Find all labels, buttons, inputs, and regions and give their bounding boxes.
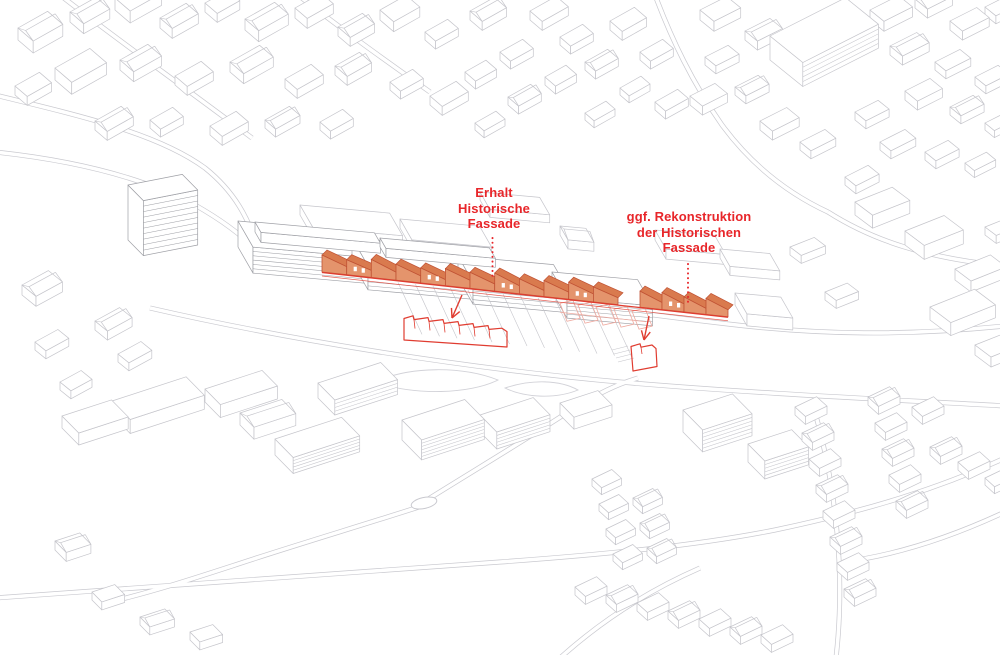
line <box>414 320 415 329</box>
line <box>444 323 445 332</box>
line <box>451 308 452 318</box>
landscape-contour <box>505 382 578 396</box>
building <box>320 109 353 139</box>
building <box>930 437 962 465</box>
building <box>975 65 1000 94</box>
building <box>882 439 914 467</box>
building <box>160 3 198 38</box>
building <box>545 65 577 94</box>
building <box>950 95 984 124</box>
building <box>700 0 741 31</box>
building <box>760 108 799 141</box>
building <box>60 371 92 399</box>
line <box>641 347 642 354</box>
building <box>975 332 1000 367</box>
building <box>795 397 827 425</box>
building <box>905 78 942 110</box>
building <box>95 106 133 140</box>
building <box>338 13 375 46</box>
building <box>889 465 921 493</box>
diagram-canvas: Erhalt Historische Fassade ggf. Rekonstr… <box>0 0 1000 655</box>
building <box>430 81 468 115</box>
building <box>128 174 198 255</box>
facade-window <box>584 293 587 298</box>
building <box>640 514 669 539</box>
building <box>668 601 700 629</box>
building <box>905 216 963 260</box>
building <box>950 8 989 41</box>
facade-window <box>510 285 513 290</box>
facade-window <box>677 303 680 308</box>
building <box>647 539 676 564</box>
building <box>896 491 928 519</box>
building <box>62 400 128 445</box>
building <box>890 33 929 66</box>
building <box>633 489 662 514</box>
annotation-line: der Historischen <box>604 225 774 241</box>
building <box>585 49 618 79</box>
building <box>730 617 762 645</box>
annotation-line: Erhalt <box>409 185 579 201</box>
roundabout <box>410 495 438 511</box>
building <box>761 625 793 653</box>
facade-window <box>362 268 365 273</box>
building <box>735 75 769 104</box>
annotation-erhalt-fassade: Erhalt Historische Fassade <box>409 185 579 232</box>
facade-window <box>354 267 357 272</box>
annotation-line: Fassade <box>604 240 774 256</box>
building <box>402 400 484 460</box>
building <box>210 111 248 145</box>
building <box>855 100 889 129</box>
building <box>592 470 621 495</box>
building <box>285 64 323 98</box>
line <box>641 330 644 340</box>
building <box>915 0 952 18</box>
building <box>825 283 859 308</box>
building <box>95 308 132 341</box>
building <box>816 475 848 503</box>
building <box>230 45 273 83</box>
arrow-down-icon <box>451 295 462 318</box>
building <box>575 577 607 605</box>
building <box>823 501 855 529</box>
building <box>610 7 647 40</box>
city-fabric <box>15 0 1000 652</box>
building <box>175 61 213 95</box>
building <box>380 0 420 32</box>
building <box>868 387 900 415</box>
building <box>655 89 688 119</box>
building <box>699 609 731 637</box>
building <box>480 398 550 449</box>
building <box>115 0 162 23</box>
building <box>500 39 533 69</box>
building <box>140 609 175 635</box>
facade-window <box>436 276 439 281</box>
building <box>530 0 568 30</box>
annotation-line: Fassade <box>409 216 579 232</box>
building <box>560 391 612 430</box>
building <box>55 533 91 562</box>
building <box>606 520 635 545</box>
building <box>585 101 615 128</box>
annotation-line: ggf. Rekonstruktion <box>604 209 774 225</box>
building <box>855 187 910 228</box>
axonometric-site-plan <box>0 0 1000 655</box>
building <box>475 111 505 138</box>
building <box>985 469 1000 494</box>
building <box>790 237 825 263</box>
building <box>118 342 152 371</box>
building <box>390 69 423 99</box>
projected-facade-outline-left <box>404 316 507 347</box>
building <box>935 49 971 78</box>
facade-window <box>576 291 579 296</box>
building <box>844 579 876 607</box>
building <box>809 449 841 477</box>
building <box>845 165 879 194</box>
building <box>265 106 300 137</box>
annotation-rekonstruktion-fassade: ggf. Rekonstruktion der Historischen Fas… <box>604 209 774 256</box>
building <box>245 2 288 41</box>
building <box>985 112 1000 137</box>
building <box>640 39 673 69</box>
building <box>875 413 907 441</box>
building <box>18 11 63 53</box>
line <box>429 321 430 330</box>
building <box>620 76 650 103</box>
building <box>560 24 593 54</box>
building <box>318 363 398 416</box>
building <box>205 0 240 22</box>
building <box>55 48 107 94</box>
line <box>614 350 630 354</box>
building <box>606 585 638 613</box>
building <box>335 52 372 85</box>
building <box>22 271 62 307</box>
facade-window <box>502 283 505 288</box>
projected-facade-outline-right <box>631 344 657 371</box>
line <box>616 354 632 358</box>
annotation-line: Historische <box>409 201 579 217</box>
building <box>880 129 916 158</box>
building <box>508 84 541 114</box>
road-surface <box>843 512 1000 562</box>
facade-window <box>669 302 672 307</box>
building <box>295 0 333 28</box>
building <box>748 430 809 479</box>
road-surface <box>118 506 422 600</box>
building <box>120 44 162 81</box>
line <box>612 346 628 350</box>
line <box>474 327 475 336</box>
building <box>599 495 628 520</box>
building <box>800 129 836 158</box>
building <box>35 330 69 359</box>
building <box>470 0 507 30</box>
building <box>770 0 878 87</box>
building <box>150 107 183 137</box>
road-casing <box>843 512 1000 562</box>
building <box>705 45 739 74</box>
facade-window <box>428 275 431 280</box>
building <box>190 625 223 650</box>
building <box>985 218 1000 243</box>
line <box>459 325 460 334</box>
building <box>425 19 458 49</box>
line <box>489 329 490 338</box>
building <box>690 83 727 115</box>
building <box>465 60 497 89</box>
building <box>683 394 752 452</box>
building <box>925 140 959 169</box>
building <box>965 152 996 177</box>
